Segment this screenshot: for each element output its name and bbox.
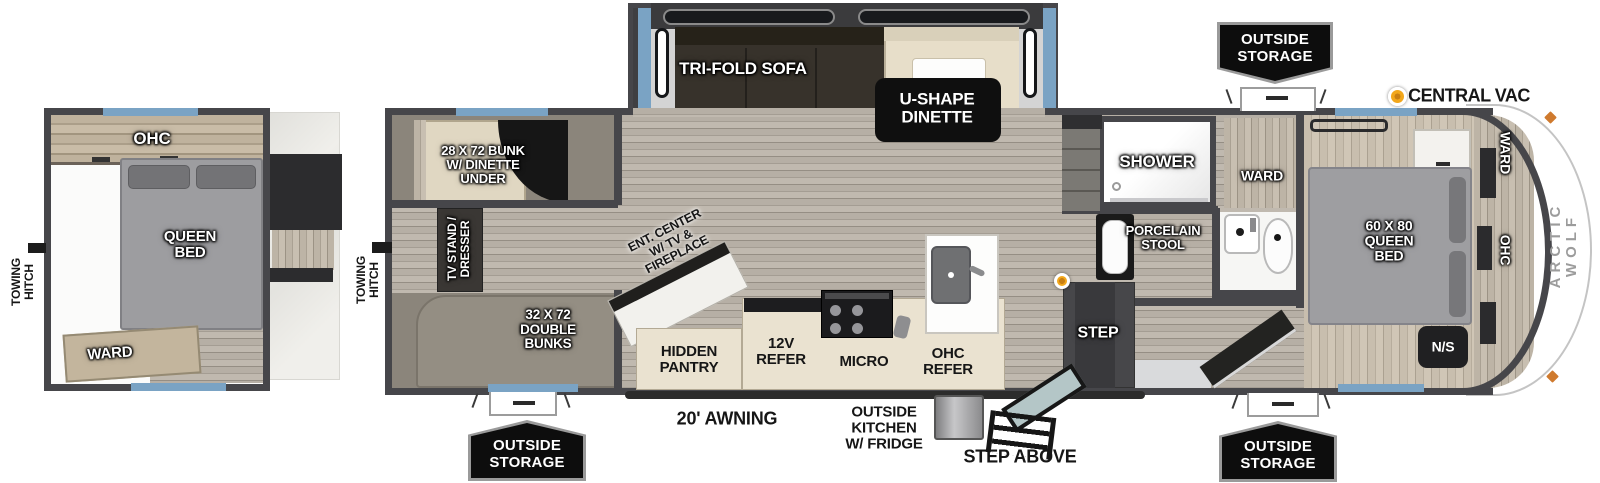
refer-12v-label: 12V REFER [756,336,806,368]
outside-kitchen-fridge [934,395,984,440]
front-unit-cabinet-latch [92,157,110,162]
toilet [1102,220,1128,274]
front-unit-ent-cabinet-upper [264,154,342,230]
wall [614,115,622,205]
burner [852,323,863,334]
toilet-bowl-drain [1274,234,1281,241]
sofa-seam [745,48,747,110]
wall [1212,208,1220,298]
ohc-refer-label: OHC REFER [923,346,973,378]
micro-label: MICRO [840,354,889,370]
front-unit-hitch [28,243,46,253]
bath-cabinet-top [1062,115,1102,129]
awning-label: 20' AWNING [677,409,778,428]
tv-stand-dresser-label: TV STAND / DRESSER [446,217,472,281]
sofa-seam [815,48,817,110]
door-tick [1225,89,1232,104]
tri-fold-sofa-label: TRI-FOLD SOFA [679,60,807,78]
bunk-dinette-label: 28 X 72 BUNK W/ DINETTE UNDER [441,144,525,186]
marker-light [1544,111,1557,124]
slideout-window-strip-left [638,8,651,108]
outside-storage-badge-top: OUTSIDE STORAGE [1217,22,1333,84]
outside-storage-label: OUTSIDE STORAGE [489,438,564,472]
door-tick [563,393,570,408]
skylight-window [663,9,835,25]
door-tick [1319,89,1326,104]
burner [830,323,841,334]
window [456,108,548,116]
window [131,383,226,391]
skylight-window [858,9,1030,25]
window [103,108,198,116]
central-vac-label: CENTRAL VAC [1408,86,1530,105]
bunk-headboard [414,120,426,203]
step-label: STEP [1078,324,1119,341]
step-above-label: STEP ABOVE [963,447,1076,466]
door-tick [1231,394,1238,409]
hidden-pantry-label: HIDDEN PANTRY [660,344,719,376]
storage-door-handle [1272,402,1294,406]
central-vac-icon [1388,87,1407,106]
wall [1212,290,1304,298]
outside-storage-badge-bottom-right: OUTSIDE STORAGE [1219,421,1337,482]
bath-drawers [1062,129,1100,211]
porcelain-stool-label: PORCELAIN STOOL [1126,224,1201,252]
window [488,384,578,392]
window [655,28,669,98]
window [1023,28,1037,98]
window [1335,108,1417,116]
entry-landing [1135,360,1211,388]
front-towing-hitch-label: TOWING HITCH [10,258,36,306]
shower-label: SHOWER [1119,153,1194,171]
wall [392,200,618,208]
bedroom-ward-label: WARD [1497,132,1512,174]
front-unit-ent-cabinet-lower [261,268,333,282]
bedroom-ohc-label: OHC [1497,235,1512,266]
outside-storage-label: OUTSIDE STORAGE [1237,32,1312,66]
outside-storage-badge-bottom-left: OUTSIDE STORAGE [468,420,586,481]
dinette-bench-back [884,27,1019,41]
main-towing-hitch-label: TOWING HITCH [355,256,381,304]
storage-door-handle [513,401,535,405]
bath-ward-label: WARD [1241,168,1283,183]
front-ward-label: WARD [87,344,133,363]
outside-storage-label: OUTSIDE STORAGE [1240,439,1315,473]
storage-door-handle [1266,96,1288,100]
shower-door [1110,198,1208,202]
sofa-back [675,27,884,45]
bath-ward-cabinet [1224,118,1296,208]
floorplan-canvas: OUTSIDE STORAGE OUTSIDE STORAGE OUTSIDE … [0,0,1600,483]
double-bunks-label: 32 X 72 DOUBLE BUNKS [520,308,576,352]
door-tick [1323,394,1330,409]
stove-knobs [825,293,889,299]
refer-12v-top [744,298,822,312]
central-vac-location-dot [1054,273,1070,289]
wall [1296,115,1304,308]
sink-drain [948,272,954,278]
wall [1135,298,1304,306]
burner [852,305,863,316]
brand-label: ARCTIC WOLF [1548,202,1580,289]
toilet-bowl [1263,218,1293,274]
slideout-window-strip-right [1043,8,1056,108]
door-tick [471,393,478,408]
window [1338,384,1424,392]
shower-drain [1112,182,1121,191]
front-unit-shelf [272,230,334,270]
front-queen-bed-label: QUEEN BED [164,229,216,261]
stove [821,290,893,338]
main-unit-hitch [372,242,392,253]
vanity-sink-drain [1236,228,1244,236]
bedroom-queen-bed-label: 60 X 80 QUEEN BED [1365,218,1414,263]
pillow [128,165,190,189]
outside-kitchen-label: OUTSIDE KITCHEN W/ FRIDGE [845,405,922,454]
front-ohc-label: OHC [133,130,170,148]
double-bunks-bed [416,295,620,388]
pillow [196,165,256,189]
roof-vent [1310,119,1388,132]
u-shape-dinette-label: U-SHAPE DINETTE [899,91,974,128]
vanity-faucet [1250,218,1256,232]
nightstand-label: N/S [1432,339,1455,354]
burner [830,305,841,316]
